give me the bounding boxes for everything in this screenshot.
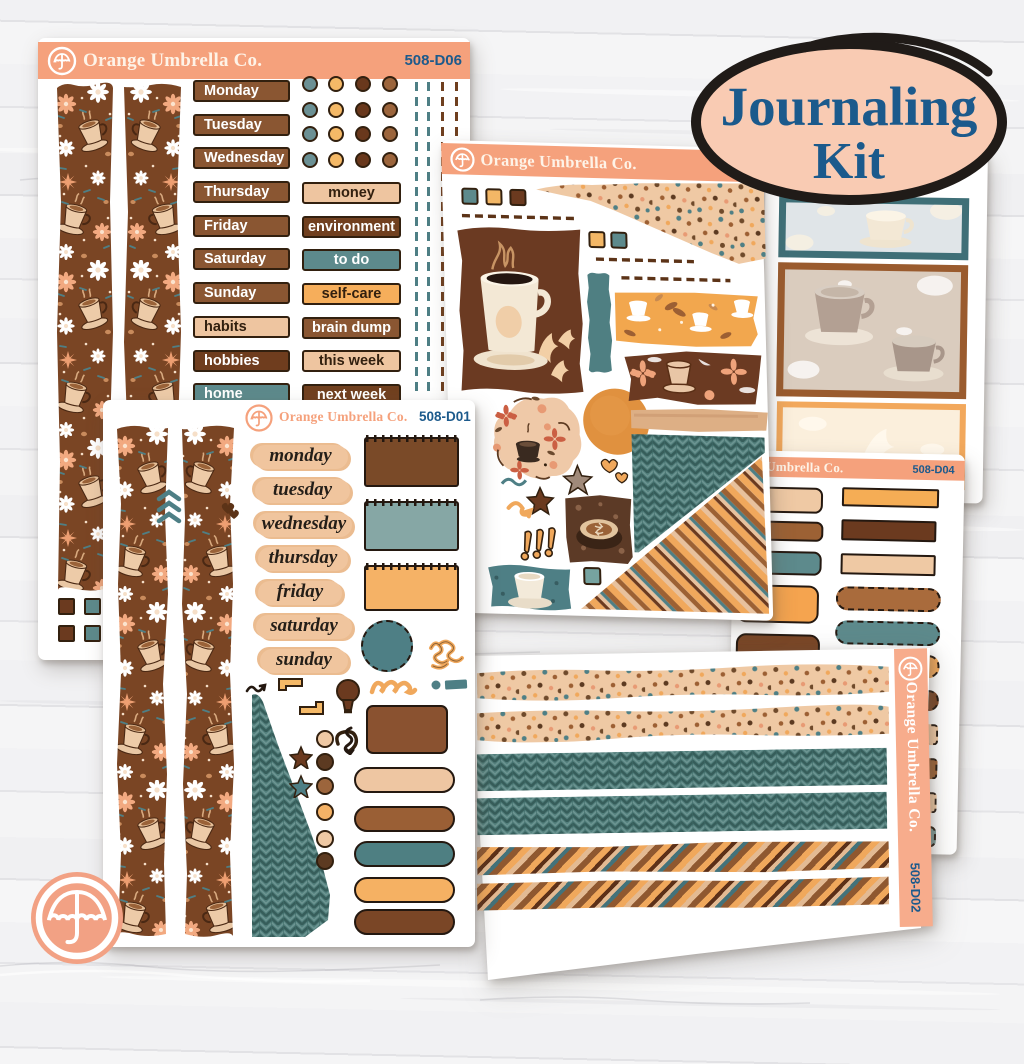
svg-text:Journaling: Journaling <box>721 76 978 137</box>
svg-text:Kit: Kit <box>813 133 886 190</box>
